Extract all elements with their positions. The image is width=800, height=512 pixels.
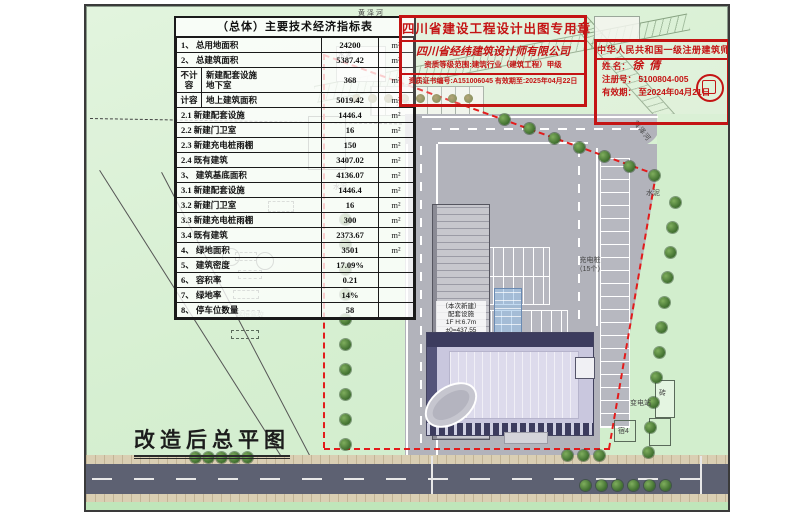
charging-label-line: 充电桩 xyxy=(570,256,610,265)
table-cell: m² xyxy=(379,168,414,183)
table-cell: 1446.4 xyxy=(322,183,379,198)
table-title: （总体）主要技术经济指标表 xyxy=(176,18,414,37)
table-cell: 3.4 既有建筑 xyxy=(177,228,322,243)
table-cell: 4136.07 xyxy=(322,168,379,183)
architect-name-row: 姓 名： 徐倩 xyxy=(597,60,727,73)
architect-seal-title: 中华人民共和国一级注册建筑师 xyxy=(597,42,727,60)
seal-certificate: 资质证书编号:A151006045 有效期至:2025年04月22日 xyxy=(402,73,584,89)
table-row: 3.4 既有建筑2373.67m² xyxy=(177,228,414,243)
table-cell: 3.1 新建配套设施 xyxy=(177,183,322,198)
tree-icon xyxy=(612,480,623,491)
table-cell: 3.3 新建充电桩雨棚 xyxy=(177,213,322,228)
table-row: 2.1 新建配套设施1446.4m² xyxy=(177,108,414,123)
table-cell: 2.4 既有建筑 xyxy=(177,153,322,168)
tree-icon xyxy=(340,439,351,450)
table-row: 2.2 新建门卫室16m² xyxy=(177,123,414,138)
tree-icon xyxy=(574,142,585,153)
charging-label-line: （15个） xyxy=(570,265,610,274)
charging-label: 充电桩 （15个） xyxy=(570,256,610,274)
table-row: 3.2 新建门卫室16m² xyxy=(177,198,414,213)
table-cell: 16 xyxy=(322,123,379,138)
seal-title: 四川省建设工程设计出图专用章 xyxy=(402,18,584,42)
entrance-steps xyxy=(504,432,548,444)
table-cell: m² xyxy=(379,243,414,258)
table-cell: m² xyxy=(379,183,414,198)
tree-icon xyxy=(660,480,671,491)
table-cell xyxy=(379,273,414,288)
table-cell: 4、 绿地面积 xyxy=(177,243,322,258)
dorm-label: 宿4 xyxy=(618,426,629,436)
table-cell: 新建配套设施地下室 xyxy=(202,68,322,93)
charging-parking-strip xyxy=(600,158,630,428)
annex-label-line: 配套设施 xyxy=(436,311,486,319)
building-wing xyxy=(575,357,595,379)
tree-icon xyxy=(624,161,635,172)
table-cell: 368 xyxy=(322,68,379,93)
tree-icon xyxy=(499,114,510,125)
table-row: 6、 容积率0.21 xyxy=(177,273,414,288)
seal-company: 四川省经纬建筑设计师有限公司 xyxy=(402,44,584,60)
table-cell: 5387.42 xyxy=(322,53,379,68)
annex-label-line: （本次新建） xyxy=(436,303,486,311)
table-cell: 24200 xyxy=(322,38,379,53)
name-label: 姓 名： xyxy=(602,61,630,71)
table-cell: 计容 xyxy=(177,93,202,108)
reg-label: 注册号： xyxy=(602,74,636,84)
table-cell: 7、 绿地率 xyxy=(177,288,322,303)
tree-icon xyxy=(651,372,662,383)
table-cell: m² xyxy=(379,198,414,213)
table-cell: 300 xyxy=(322,213,379,228)
tree-icon xyxy=(665,247,676,258)
table-cell: 3、 建筑基底面积 xyxy=(177,168,322,183)
table-cell: 14% xyxy=(322,288,379,303)
tree-icon xyxy=(562,450,573,461)
tree-icon xyxy=(654,347,665,358)
table-cell: 不计容 xyxy=(177,68,202,93)
table-cell: 2373.67 xyxy=(322,228,379,243)
tree-icon xyxy=(644,480,655,491)
table-cell: 2.3 新建充电桩雨棚 xyxy=(177,138,322,153)
tree-icon xyxy=(340,389,351,400)
brick-label: 砖 xyxy=(659,388,666,398)
table-cell: 1、 总用地面积 xyxy=(177,38,322,53)
table-cell: 5019.42 xyxy=(322,93,379,108)
registration-seal-icon xyxy=(696,74,724,102)
table-cell: 2.1 新建配套设施 xyxy=(177,108,322,123)
table-cell: m² xyxy=(379,213,414,228)
table-cell: 6、 容积率 xyxy=(177,273,322,288)
table-row: 2、 总建筑面积5387.42m² xyxy=(177,53,414,68)
tree-icon xyxy=(549,133,560,144)
tree-icon xyxy=(580,480,591,491)
table-cell: m² xyxy=(379,123,414,138)
tree-icon xyxy=(578,450,589,461)
table-row: 8、 停车位数量58 xyxy=(177,303,414,318)
tree-icon xyxy=(594,450,605,461)
plan-title: 改造后总平图 xyxy=(134,424,290,457)
site-plan-sheet: （本次新建） 配套设施 1F H:6.7m ±0=437.55 xyxy=(84,4,730,512)
architect-name: 徐倩 xyxy=(632,60,666,72)
tree-icon xyxy=(649,170,660,181)
tree-icon xyxy=(596,480,607,491)
indicators-grid: 1、 总用地面积24200m²2、 总建筑面积5387.42m²不计容新建配套设… xyxy=(176,37,414,318)
table-cell: m² xyxy=(379,138,414,153)
green-verge xyxy=(86,502,728,510)
table-row: 计容地上建筑面积5019.42m² xyxy=(177,93,414,108)
design-institute-seal: 四川省建设工程设计出图专用章 四川省经纬建筑设计师有限公司 资质等级范围:建筑行… xyxy=(399,15,587,107)
tree-icon xyxy=(670,197,681,208)
cement-label: 水泥 xyxy=(646,188,660,198)
table-row: 1、 总用地面积24200m² xyxy=(177,38,414,53)
tree-icon xyxy=(659,297,670,308)
lane-dash-horizontal xyxy=(432,128,648,130)
building-roof-band xyxy=(427,333,593,347)
table-cell: 16 xyxy=(322,198,379,213)
table-row: 不计容新建配套设施地下室368m² xyxy=(177,68,414,93)
table-cell: 17.09% xyxy=(322,258,379,273)
table-cell xyxy=(379,288,414,303)
table-cell xyxy=(379,303,414,318)
table-cell: 2、 总建筑面积 xyxy=(177,53,322,68)
table-row: 2.3 新建充电桩雨棚150m² xyxy=(177,138,414,153)
table-cell xyxy=(379,258,414,273)
reg-number: 5100804-005 xyxy=(638,74,688,84)
table-cell: 8、 停车位数量 xyxy=(177,303,322,318)
tree-icon xyxy=(340,364,351,375)
tree-icon xyxy=(340,339,351,350)
drawing-page: （本次新建） 配套设施 1F H:6.7m ±0=437.55 xyxy=(0,0,800,512)
table-cell: 3.2 新建门卫室 xyxy=(177,198,322,213)
table-cell: 150 xyxy=(322,138,379,153)
table-cell: 0.21 xyxy=(322,273,379,288)
table-row: 3.1 新建配套设施1446.4m² xyxy=(177,183,414,198)
table-row: 3、 建筑基底面积4136.07m² xyxy=(177,168,414,183)
table-cell: m² xyxy=(379,153,414,168)
table-row: 4、 绿地面积3501m² xyxy=(177,243,414,258)
table-cell: 1446.4 xyxy=(322,108,379,123)
table-cell: 5、 建筑密度 xyxy=(177,258,322,273)
table-cell: 58 xyxy=(322,303,379,318)
lane-dash-vertical xyxy=(420,146,422,452)
table-row: 2.4 既有建筑3407.02m² xyxy=(177,153,414,168)
road-centerline xyxy=(92,478,722,480)
table-cell: 3501 xyxy=(322,243,379,258)
table-row: 7、 绿地率14% xyxy=(177,288,414,303)
table-cell: 3407.02 xyxy=(322,153,379,168)
lane-dash-vertical xyxy=(578,148,580,328)
tree-icon xyxy=(628,480,639,491)
substation-label: 变电站 xyxy=(630,398,651,408)
indicators-table: （总体）主要技术经济指标表 1、 总用地面积24200m²2、 总建筑面积538… xyxy=(174,16,416,320)
table-row: 5、 建筑密度17.09% xyxy=(177,258,414,273)
table-row: 3.3 新建充电桩雨棚300m² xyxy=(177,213,414,228)
tree-icon xyxy=(340,414,351,425)
architect-seal: 中华人民共和国一级注册建筑师 姓 名： 徐倩 注册号： 5100804-005 … xyxy=(594,39,730,125)
tree-icon xyxy=(662,272,673,283)
table-cell: m² xyxy=(379,228,414,243)
annex-label-line: 1F H:6.7m xyxy=(436,319,486,327)
table-cell: 2.2 新建门卫室 xyxy=(177,123,322,138)
table-cell: 地上建筑面积 xyxy=(202,93,322,108)
road-edge-line xyxy=(596,148,598,326)
table-cell: m² xyxy=(379,108,414,123)
tree-icon xyxy=(643,447,654,458)
seal-scope: 资质等级范围:建筑行业（建筑工程）甲级 xyxy=(402,60,584,70)
valid-label: 有效期： xyxy=(602,87,636,97)
